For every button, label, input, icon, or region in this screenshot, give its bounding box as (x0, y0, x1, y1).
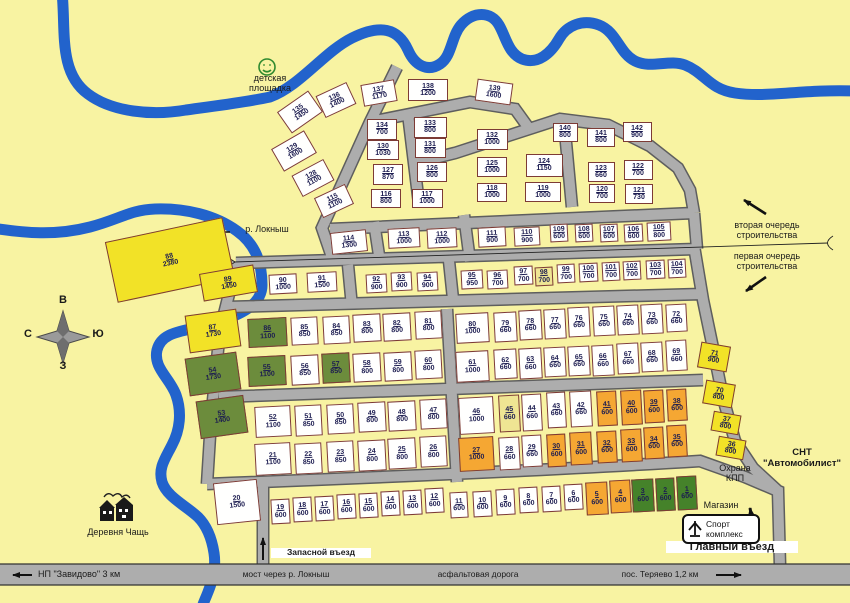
phase2-arrow (744, 200, 766, 214)
road-network (207, 67, 780, 568)
map-base-layer (0, 0, 850, 603)
village-houses-icon (99, 494, 133, 521)
phase1-arrow (746, 277, 766, 291)
playground-smiley-icon (259, 59, 275, 75)
snt-map: 1600260036004600560066007600860096001060… (0, 0, 850, 603)
compass-rose-icon (37, 311, 89, 363)
main-entrance-arrow (750, 508, 757, 547)
